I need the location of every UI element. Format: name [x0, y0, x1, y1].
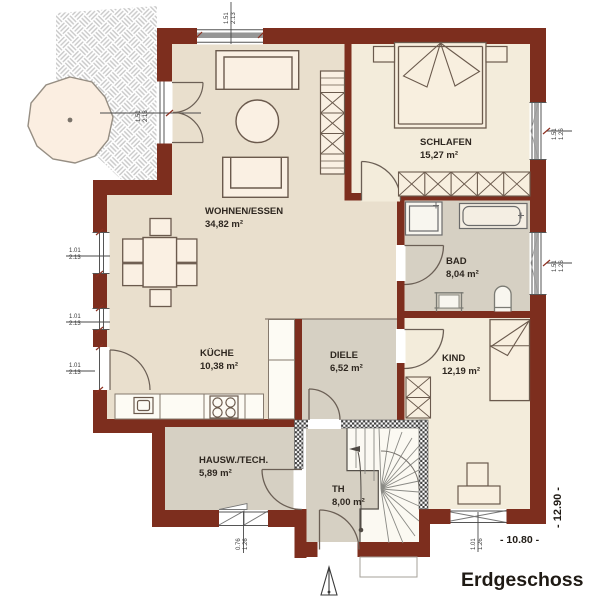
- svg-text:SCHLAFEN: SCHLAFEN: [420, 137, 472, 148]
- svg-text:DIELE: DIELE: [330, 350, 358, 361]
- svg-text:8,04 m²: 8,04 m²: [446, 269, 479, 280]
- svg-text:0.76: 0.76: [236, 538, 242, 550]
- svg-text:WOHNEN/ESSEN: WOHNEN/ESSEN: [205, 206, 283, 217]
- svg-text:34,82 m²: 34,82 m²: [205, 219, 243, 230]
- svg-text:1.01: 1.01: [69, 314, 81, 320]
- svg-text:1.26: 1.26: [559, 128, 565, 140]
- svg-text:Erdgeschoss: Erdgeschoss: [461, 569, 584, 591]
- svg-text:2.13: 2.13: [231, 12, 237, 24]
- svg-text:1.51: 1.51: [552, 128, 558, 140]
- svg-text:1.51: 1.51: [136, 110, 142, 122]
- svg-text:HAUSW./TECH.: HAUSW./TECH.: [199, 455, 268, 466]
- svg-text:10,38 m²: 10,38 m²: [200, 361, 238, 372]
- svg-text:KIND: KIND: [442, 353, 465, 364]
- svg-text:1.26: 1.26: [559, 260, 565, 272]
- svg-text:KÜCHE: KÜCHE: [200, 348, 234, 359]
- svg-text:2.13: 2.13: [69, 370, 81, 376]
- svg-text:BAD: BAD: [446, 256, 467, 267]
- svg-text:- 10.80 -: - 10.80 -: [500, 534, 540, 546]
- svg-text:1.01: 1.01: [69, 363, 81, 369]
- svg-text:1.51: 1.51: [552, 260, 558, 272]
- svg-text:2.13: 2.13: [69, 255, 81, 261]
- svg-text:2.13: 2.13: [69, 321, 81, 327]
- svg-text:5,89 m²: 5,89 m²: [199, 468, 232, 479]
- svg-text:1.26: 1.26: [478, 538, 484, 550]
- svg-text:15,27 m²: 15,27 m²: [420, 150, 458, 161]
- svg-text:1.51: 1.51: [224, 12, 230, 24]
- svg-text:1.01: 1.01: [471, 538, 477, 550]
- svg-text:12,19 m²: 12,19 m²: [442, 366, 480, 377]
- svg-text:1.26: 1.26: [243, 538, 249, 550]
- svg-text:2.13: 2.13: [143, 110, 149, 122]
- svg-text:- 12.90 -: - 12.90 -: [552, 487, 564, 528]
- svg-text:8,00 m²: 8,00 m²: [332, 497, 365, 508]
- svg-text:TH: TH: [332, 484, 345, 495]
- svg-text:1.01: 1.01: [69, 248, 81, 254]
- svg-text:6,52 m²: 6,52 m²: [330, 363, 363, 374]
